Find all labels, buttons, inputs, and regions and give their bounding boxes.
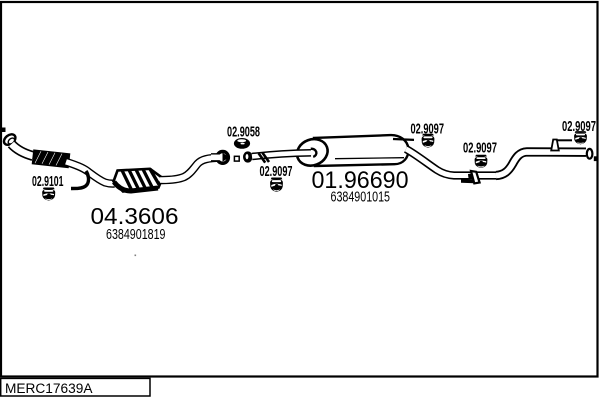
- svg-text:02.9097: 02.9097: [562, 118, 596, 135]
- svg-text:04.3606: 04.3606: [91, 203, 179, 229]
- svg-text:6384901015: 6384901015: [331, 190, 391, 206]
- svg-text:02.9097: 02.9097: [411, 120, 445, 137]
- svg-text:02.9097: 02.9097: [260, 163, 293, 180]
- svg-text:MERC17639A: MERC17639A: [5, 381, 92, 396]
- svg-text:02.9058: 02.9058: [227, 124, 260, 141]
- svg-text:6384901819: 6384901819: [106, 227, 166, 243]
- svg-text:02.9101: 02.9101: [32, 173, 64, 190]
- svg-text:02.9097: 02.9097: [463, 140, 497, 157]
